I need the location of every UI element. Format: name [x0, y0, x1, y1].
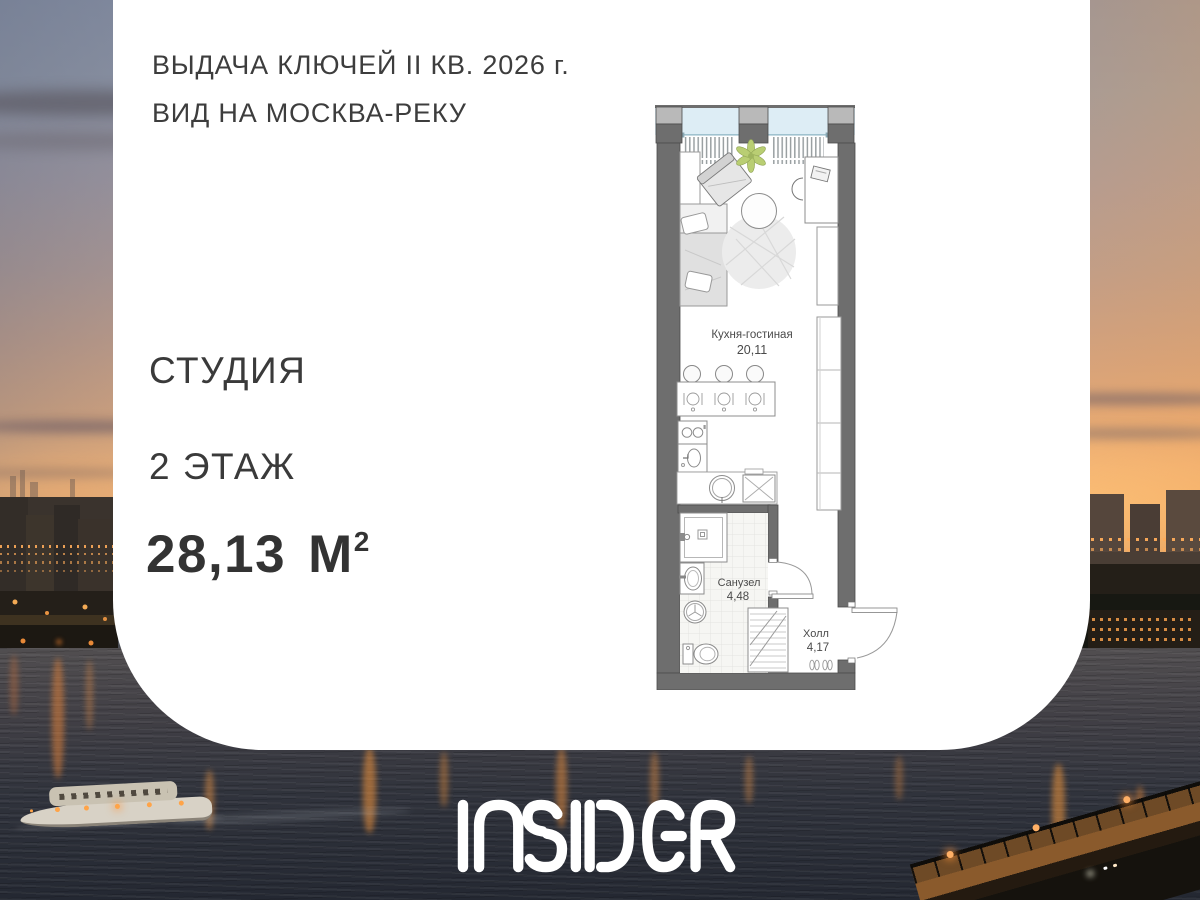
cabinet — [817, 227, 838, 305]
city-skyline-right — [1082, 488, 1200, 558]
shoes — [810, 660, 832, 670]
far-skyline — [0, 468, 118, 500]
room-area-living: 20,11 — [737, 343, 767, 357]
logo-letter-n — [479, 805, 518, 867]
desk-chair — [792, 178, 803, 200]
embankment-left — [0, 591, 118, 653]
toilet — [683, 644, 718, 664]
kitchen-appliances — [677, 469, 777, 504]
boat-windows — [59, 788, 167, 800]
view-line: ВИД НА МОСКВА-РЕКУ — [152, 98, 467, 129]
room-label-living: Кухня-гостиная — [711, 329, 792, 341]
floor-label: 2 ЭТАЖ — [149, 446, 296, 488]
city-skyline-left — [0, 497, 118, 593]
room-area-bathroom: 4,48 — [727, 591, 749, 603]
light-reflection — [86, 660, 93, 730]
light-reflection — [895, 756, 903, 800]
shower — [680, 513, 727, 562]
area-value: 28,13 — [146, 525, 286, 584]
entry-door — [848, 602, 897, 663]
round-table — [742, 194, 777, 229]
area-exponent: 2 — [354, 526, 371, 557]
kitchen-sink — [678, 444, 707, 472]
wardrobe-right — [817, 317, 841, 510]
floor-plan: Кухня-гостиная 20,11 Санузел 4,48 Холл 4… — [655, 105, 905, 690]
light-reflection — [363, 748, 376, 833]
logo-letter-d-bowl — [601, 805, 629, 867]
room-area-hall: 4,17 — [807, 642, 829, 654]
bar-stools — [684, 366, 764, 383]
washing-machine — [684, 601, 706, 623]
bathroom-door — [769, 559, 813, 599]
logo-letter-s-bottom — [530, 834, 562, 867]
bed — [680, 204, 727, 306]
hall-closet — [748, 608, 788, 672]
area-unit: М — [308, 525, 354, 584]
key-handover-line: ВЫДАЧА КЛЮЧЕЙ II КВ. 2026 г. — [152, 50, 570, 81]
room-label-hall: Холл — [803, 628, 829, 640]
light-reflection — [52, 658, 64, 778]
logo-letter-s-top — [527, 805, 557, 831]
car-headlights — [1103, 866, 1108, 870]
bathroom-sink — [679, 563, 704, 594]
insider-logo: INSIDER — [456, 798, 744, 874]
cooktop — [678, 421, 707, 444]
road-lights — [908, 858, 912, 862]
light-reflection — [440, 752, 448, 807]
street-lights — [0, 0, 2, 2]
light-reflection — [745, 756, 753, 804]
desk — [805, 157, 838, 223]
bar-counter — [677, 382, 775, 416]
area-label: 28,13М2 — [146, 524, 371, 585]
room-label-bathroom: Санузел — [718, 577, 761, 589]
light-reflection — [10, 655, 18, 715]
listing-card: ВЫДАЧА КЛЮЧЕЙ II КВ. 2026 г. ВИД НА МОСК… — [113, 0, 1090, 750]
logo-letter-r-leg — [716, 842, 730, 867]
unit-type-label: СТУДИЯ — [149, 350, 306, 392]
river-boat — [18, 762, 252, 854]
